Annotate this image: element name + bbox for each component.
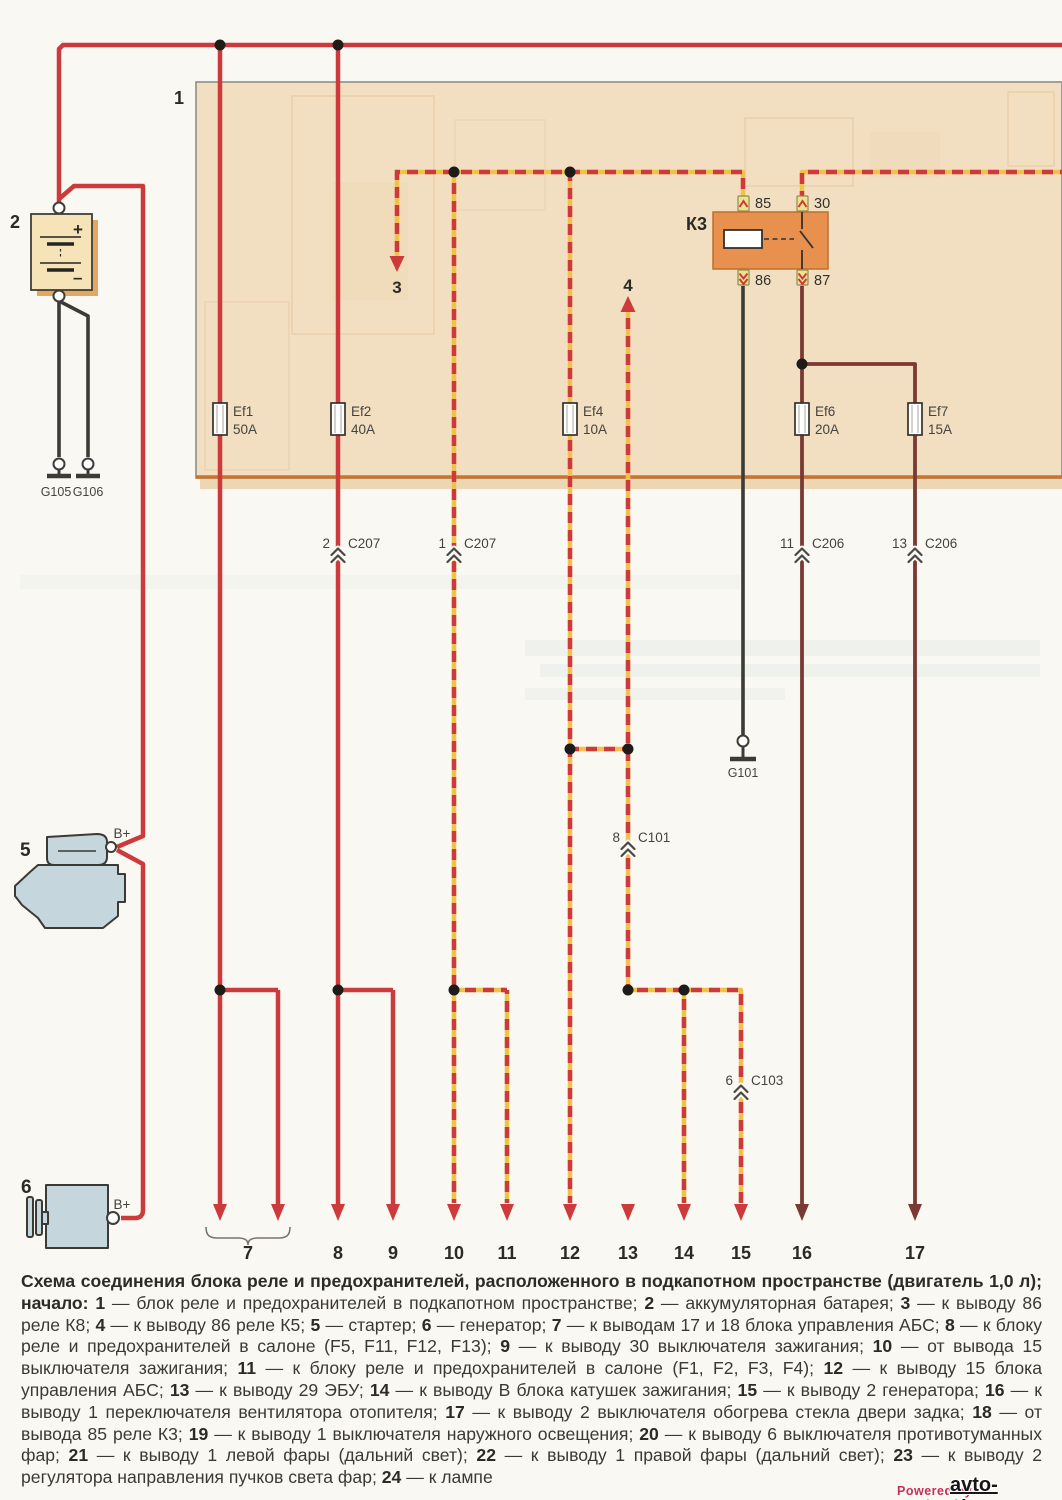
relay-pin85-label: 85	[755, 196, 771, 212]
fuse-name: Ef4	[583, 404, 604, 419]
fuse-rating: 40A	[351, 422, 375, 437]
generator: B+ 6	[21, 1177, 131, 1248]
output-label-15: 15	[731, 1243, 751, 1263]
starter-bplus-terminal	[106, 842, 116, 852]
wire-feed-starter-generator	[59, 186, 143, 1218]
battery-plus-sign: +	[73, 220, 83, 239]
branch-arrow-3-label: 3	[392, 278, 401, 297]
fuse-name: Ef6	[815, 404, 835, 419]
output-label-10: 10	[444, 1243, 464, 1263]
output-label-9: 9	[388, 1243, 398, 1263]
output-label-14: 14	[674, 1243, 694, 1263]
connector-name: C103	[751, 1073, 783, 1088]
caption-text: Схема соединения блока реле и предохрани…	[21, 1271, 1042, 1487]
figure-caption: Схема соединения блока реле и предохрани…	[21, 1271, 1042, 1489]
fuse-name: Ef2	[351, 404, 371, 419]
connector-c101-8: 8 C101	[612, 830, 670, 856]
relay-pin86-label: 86	[755, 273, 771, 289]
scanned-wiring-diagram-page: 1 3 4	[0, 0, 1062, 1500]
ground-g106-label: G106	[73, 485, 104, 499]
ground-g105-label: G105	[41, 485, 72, 499]
wire-ef7-output17	[802, 364, 915, 1205]
relay-label: К3	[686, 214, 707, 234]
output-label-17: 17	[905, 1243, 925, 1263]
generator-label: 6	[21, 1177, 32, 1198]
connector-pin: 2	[322, 536, 330, 551]
output-label-13: 13	[618, 1243, 638, 1263]
starter-terminal-label: B+	[114, 826, 131, 841]
output-label-16: 16	[792, 1243, 812, 1263]
connector-name: C101	[638, 830, 670, 845]
generator-bplus-terminal	[107, 1212, 119, 1224]
ground-terminal	[54, 459, 65, 470]
connector-pin: 13	[892, 536, 907, 551]
connector-pin: 11	[780, 536, 794, 551]
connector-c207-2: 2 C207	[322, 536, 380, 562]
connector-c207-1: 1 C207	[438, 536, 496, 562]
fusebox-shadow	[200, 479, 1062, 489]
fuse-rating: 15A	[928, 422, 952, 437]
fuse-rating: 50A	[233, 422, 257, 437]
ground-terminal	[83, 459, 94, 470]
connector-name: C207	[348, 536, 380, 551]
inline-connectors: 2 C207 1 C207 11 C206 13 C206 8 C101	[322, 536, 957, 1099]
connector-c103-6: 6 C103	[725, 1073, 783, 1099]
connector-pin: 8	[612, 830, 620, 845]
connector-name: C206	[812, 536, 844, 551]
connector-pin: 1	[438, 536, 446, 551]
ground-icon	[47, 469, 100, 476]
fusebox-label: 1	[174, 88, 184, 108]
output-label-12: 12	[560, 1243, 580, 1263]
fuse-rating: 20A	[815, 422, 839, 437]
connector-c206-13: 13 C206	[892, 536, 957, 562]
output-label-11: 11	[497, 1243, 516, 1263]
watermark-site-link[interactable]: avto-shema.ru	[950, 1474, 1062, 1500]
output-label-8: 8	[333, 1243, 343, 1263]
fuse-name: Ef7	[928, 404, 948, 419]
output-label-7: 7	[243, 1243, 253, 1263]
relay-coil-icon	[724, 230, 762, 248]
relay-pin30-label: 30	[814, 196, 830, 212]
starter: B+ 5	[15, 826, 131, 928]
ground-g101: G101	[728, 736, 759, 781]
ground-terminal	[738, 736, 749, 747]
battery-label: 2	[10, 212, 20, 232]
battery-ground-leads: G105 G106	[41, 301, 104, 499]
starter-label: 5	[20, 840, 31, 861]
generator-pulley-icon	[27, 1197, 48, 1237]
fuse-rating: 10A	[583, 422, 607, 437]
relay-pin87-label: 87	[814, 273, 830, 289]
connector-c206-11: 11 C206	[780, 536, 844, 562]
battery-positive-terminal	[54, 203, 65, 214]
starter-body	[15, 865, 125, 928]
connector-pin: 6	[725, 1073, 733, 1088]
generator-terminal-label: B+	[114, 1197, 131, 1212]
starter-solenoid	[47, 834, 107, 865]
fuse-name: Ef1	[233, 404, 253, 419]
connector-name: C207	[464, 536, 496, 551]
generator-body	[46, 1185, 108, 1248]
page-showthrough	[20, 575, 1040, 700]
output-arrows: 7 8 9 10 11 12 13 14 15 16 17	[206, 1204, 925, 1263]
battery-negative-terminal	[54, 291, 65, 302]
battery: + – 2	[10, 203, 98, 302]
ground-g101-label: G101	[728, 766, 759, 780]
battery-minus-sign: –	[73, 268, 82, 287]
branch-arrow-4-label: 4	[623, 276, 633, 295]
connector-name: C206	[925, 536, 957, 551]
ground-icon	[730, 747, 756, 759]
